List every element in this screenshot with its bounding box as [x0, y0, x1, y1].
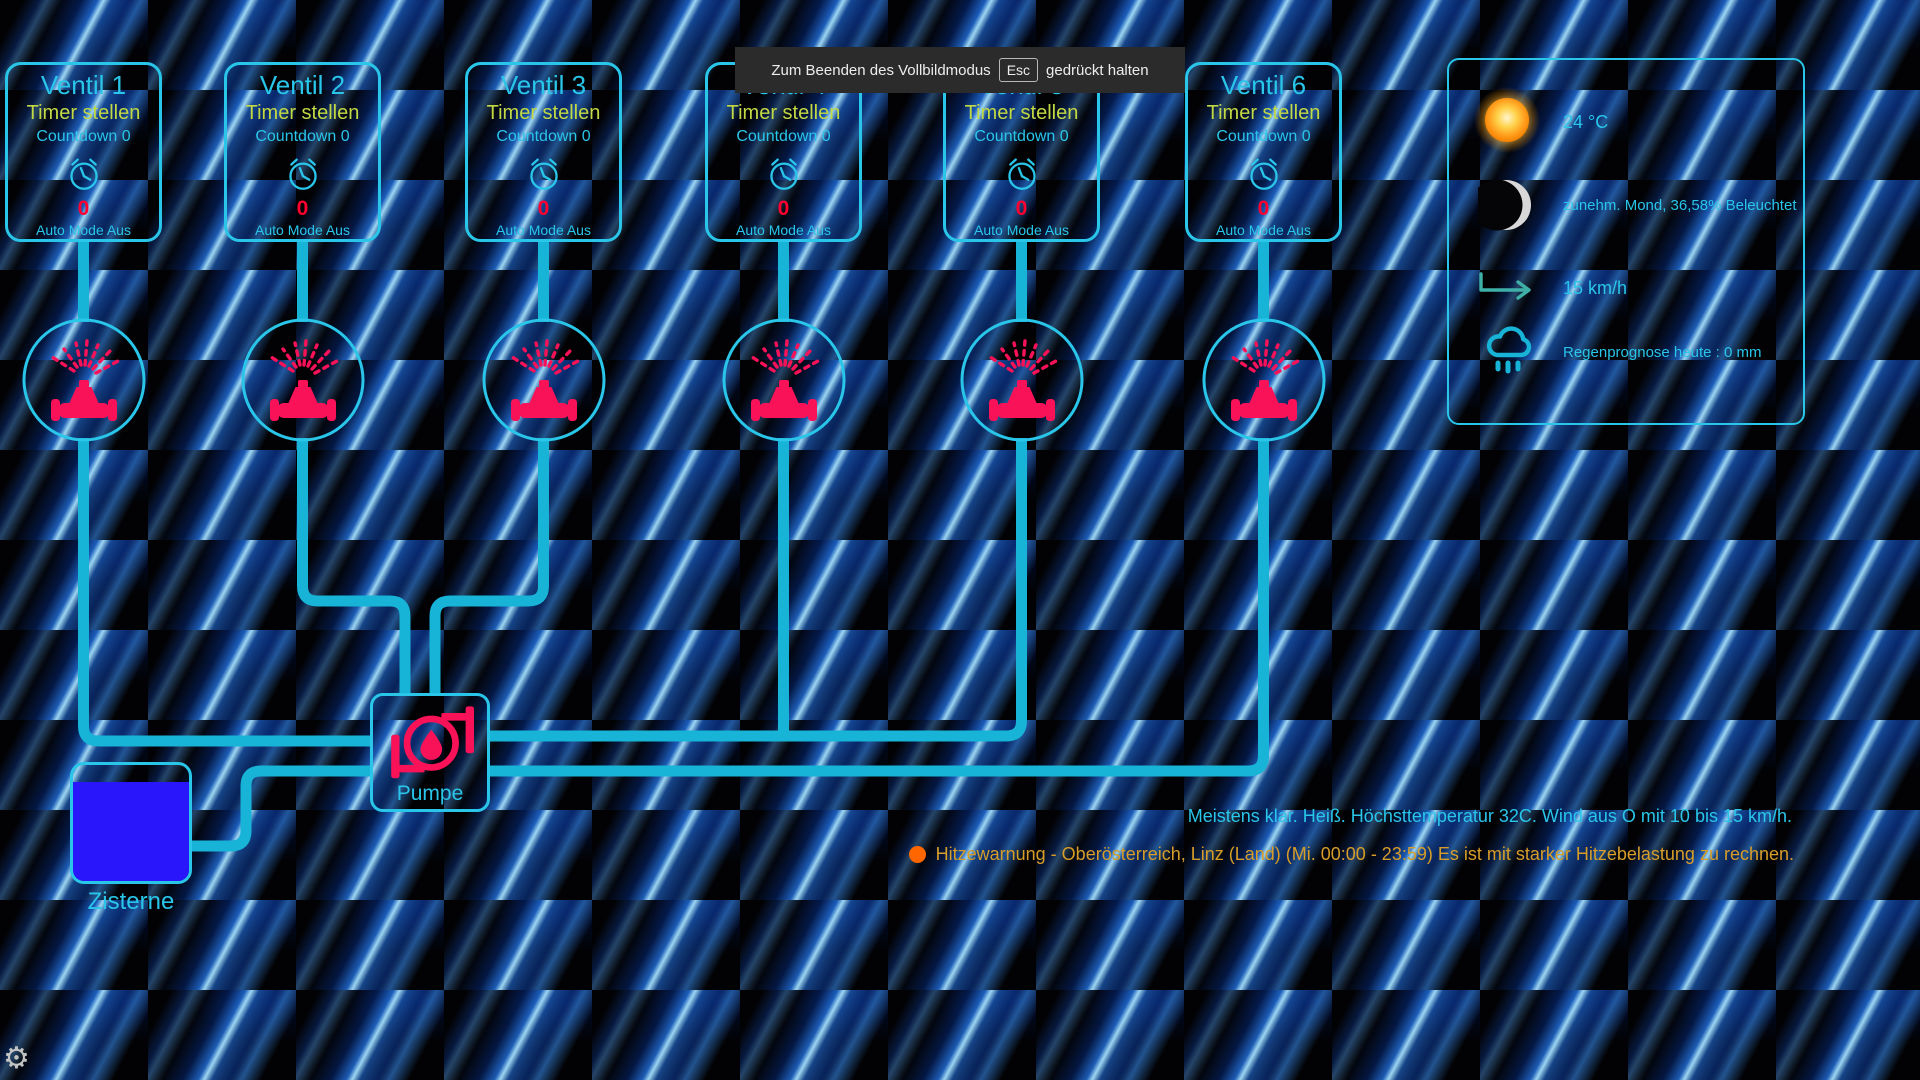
alarm-clock-icon[interactable]	[280, 152, 326, 195]
fullscreen-exit-notice: Zum Beenden des Vollbildmodus Esc gedrüc…	[735, 47, 1185, 93]
alarm-clock-icon[interactable]	[1241, 152, 1287, 195]
valve-countdown-value: 0	[538, 197, 550, 221]
cistern-tank	[70, 762, 192, 884]
sprinkler-icon-1	[19, 315, 149, 445]
warning-text: Hitzewarnung - Oberösterreich, Linz (Lan…	[936, 844, 1794, 865]
pipe-bus-valve6	[488, 438, 1264, 771]
alarm-clock-icon[interactable]	[61, 152, 107, 195]
valve-panel-2[interactable]: Ventil 2 Timer stellen Countdown 0 0 Aut…	[224, 62, 381, 242]
valve-countdown-value: 0	[778, 197, 790, 221]
moon-phase-icon	[1478, 177, 1534, 233]
wind-icon	[1475, 266, 1537, 306]
temperature-value: 24 °C	[1563, 112, 1608, 133]
sprinkler-icon-4	[719, 315, 849, 445]
cistern-label: Zisterne	[70, 888, 192, 916]
forecast-status-text: Meistens klar. Heiß. Höchsttemperatur 32…	[1188, 806, 1792, 827]
valve-automode-toggle[interactable]: Auto Mode Aus	[255, 221, 350, 239]
sprinkler-icon-3	[479, 315, 609, 445]
valve-automode-toggle[interactable]: Auto Mode Aus	[974, 221, 1069, 239]
valve-automode-toggle[interactable]: Auto Mode Aus	[1216, 221, 1311, 239]
valve-countdown-value: 0	[78, 197, 90, 221]
alarm-clock-icon[interactable]	[761, 152, 807, 195]
pump: Pumpe	[370, 693, 490, 812]
settings-gear-icon[interactable]: ⚙	[3, 1044, 30, 1074]
pipe-valve3-to-pump	[435, 438, 544, 696]
moon-phase-text: zunehm. Mond, 36,58% Beleuchtet	[1563, 197, 1796, 214]
valve-panel-1[interactable]: Ventil 1 Timer stellen Countdown 0 0 Aut…	[5, 62, 162, 242]
rain-forecast-icon	[1481, 322, 1537, 378]
pump-label: Pumpe	[373, 782, 487, 806]
valve-panel-6[interactable]: Ventil 6 Timer stellen Countdown 0 0 Aut…	[1185, 62, 1342, 242]
valve-timer-button[interactable]: Timer stellen	[487, 100, 601, 126]
valve-title: Ventil 3	[501, 70, 586, 100]
valve-automode-toggle[interactable]: Auto Mode Aus	[36, 221, 131, 239]
valve-countdown-label: Countdown 0	[1216, 126, 1310, 148]
cistern-water-level	[73, 782, 189, 881]
valve-timer-button[interactable]: Timer stellen	[246, 100, 360, 126]
fullscreen-exit-text-after: gedrückt halten	[1046, 62, 1149, 79]
valve-timer-button[interactable]: Timer stellen	[27, 100, 141, 126]
pipe-bus-valve5	[488, 438, 1022, 736]
sprinkler-icon-5	[957, 315, 1087, 445]
pipe-valve2-to-pump	[303, 438, 406, 696]
sun-icon	[1473, 86, 1541, 154]
sprinkler-icon-2	[238, 315, 368, 445]
valve-automode-toggle[interactable]: Auto Mode Aus	[496, 221, 591, 239]
valve-title: Ventil 1	[41, 70, 126, 100]
valve-title: Ventil 2	[260, 70, 345, 100]
fullscreen-exit-text-before: Zum Beenden des Vollbildmodus	[771, 62, 990, 79]
weather-panel: 24 °C zunehm. Mond, 36,58% Beleuchtet 15…	[1447, 58, 1805, 425]
weather-warning: Hitzewarnung - Oberösterreich, Linz (Lan…	[909, 844, 1794, 865]
valve-countdown-value: 0	[1258, 197, 1270, 221]
rain-forecast-text: Regenprognose heute : 0 mm	[1563, 344, 1761, 361]
esc-key-badge: Esc	[999, 58, 1038, 82]
pipe-cistern-to-pump	[190, 771, 372, 846]
valve-timer-button[interactable]: Timer stellen	[965, 100, 1079, 126]
valve-countdown-label: Countdown 0	[36, 126, 130, 148]
valve-title: Ventil 6	[1221, 70, 1306, 100]
valve-countdown-value: 0	[297, 197, 309, 221]
valve-countdown-value: 0	[1016, 197, 1028, 221]
alarm-clock-icon[interactable]	[999, 152, 1045, 195]
pipe-valve1-to-pump	[84, 438, 373, 741]
sprinkler-icon-6	[1199, 315, 1329, 445]
valve-countdown-label: Countdown 0	[974, 126, 1068, 148]
warning-dot-icon	[909, 846, 926, 863]
valve-countdown-label: Countdown 0	[736, 126, 830, 148]
pump-icon	[379, 698, 487, 790]
valve-panel-3[interactable]: Ventil 3 Timer stellen Countdown 0 0 Aut…	[465, 62, 622, 242]
valve-timer-button[interactable]: Timer stellen	[727, 100, 841, 126]
wind-speed-value: 15 km/h	[1563, 278, 1627, 299]
valve-timer-button[interactable]: Timer stellen	[1207, 100, 1321, 126]
alarm-clock-icon[interactable]	[521, 152, 567, 195]
valve-countdown-label: Countdown 0	[496, 126, 590, 148]
valve-automode-toggle[interactable]: Auto Mode Aus	[736, 221, 831, 239]
valve-countdown-label: Countdown 0	[255, 126, 349, 148]
